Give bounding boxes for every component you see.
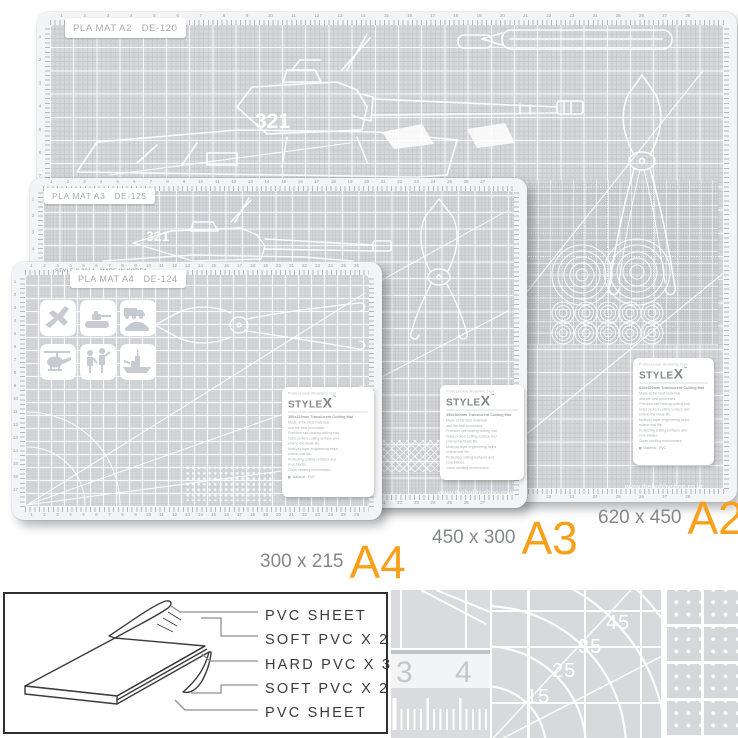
mat-a3-label-tab: PLA MAT A3 DE-125	[44, 188, 155, 204]
closeup-dotted-squares	[664, 590, 738, 738]
stylex-logo: STYLEX™	[639, 367, 708, 382]
mat-a4-label: PLA MAT A4 DE-124	[78, 274, 178, 284]
card-text: Made of the best materialsand the best p…	[446, 419, 518, 472]
mat-a3-label: PLA MAT A3 DE-125	[52, 191, 147, 201]
ruler-number: 3	[396, 656, 413, 690]
card-dims-line: 450x300mm Translucent Cutting Mat	[446, 413, 518, 418]
card-divider	[639, 383, 708, 384]
cutting-mat-a4: 1234567891011121314151617181920212223242…	[12, 262, 382, 520]
bullet-square-icon	[639, 447, 642, 450]
arc-number: 35	[578, 636, 602, 659]
size-label-a4: 300 x 215 A4	[260, 544, 406, 582]
layer-label: HARD PVC X 3	[265, 657, 392, 673]
card-text: Made of the best materialsand the best p…	[639, 392, 708, 445]
ruler-minor-ticks	[391, 709, 490, 730]
dimensions-text: 450 x 300	[432, 527, 515, 549]
layer-construction-panel: PVC SHEETSOFT PVC X 2HARD PVC X 3SOFT PV…	[3, 592, 388, 734]
size-letter: A3	[521, 520, 577, 558]
card-material: Material : PVC	[639, 447, 708, 451]
card-dims-line: 300x215mm Translucent Cutting Mat	[288, 415, 368, 420]
card-dims-line: 620x450mm Translucent Cutting Mat	[639, 386, 708, 391]
ruler-numbers: 1234567891011121314151617181920212223242…	[43, 179, 514, 187]
arc-number: 45	[606, 612, 630, 635]
dimensions-text: 620 x 450	[598, 507, 681, 529]
fine-grid-patch	[515, 180, 718, 345]
bullet-square-icon	[288, 476, 291, 479]
dot-texture-patch	[185, 465, 275, 501]
watermark: www.thehobbyshop.co.kr	[438, 490, 516, 497]
closeup-ruler-edge: 34	[391, 590, 490, 738]
dimensions-text: 300 x 215	[260, 551, 343, 573]
ruler-numbers: 1234567891011121314151617181920212223242…	[25, 512, 369, 520]
size-letter: A4	[349, 544, 405, 582]
stylex-logo: STYLEX™	[288, 396, 368, 411]
card-text: Made of the best materialsand the best p…	[288, 421, 368, 474]
ruler-number-band: 34	[391, 654, 490, 688]
layer-label: PVC SHEET	[265, 705, 392, 721]
card-material: Material : PVC	[288, 476, 368, 480]
arc-number: 15	[526, 686, 550, 709]
ruler-numbers: 1234567891011121314151617	[13, 275, 21, 507]
mat-a2-label-tab: PLA MAT A2 DE-120	[65, 18, 186, 38]
arc-number: 25	[552, 660, 576, 683]
product-image: 1234567891011121314151617181920212223242…	[0, 0, 738, 738]
stylex-card-a4: Professional Modeling Tool STYLEX™ 300x2…	[282, 387, 374, 497]
stylex-logo: STYLEX™	[446, 394, 518, 409]
layer-label: SOFT PVC X 2	[265, 632, 392, 648]
stylex-card-a3: Professional Modeling Tool STYLEX™ 450x3…	[440, 385, 524, 480]
card-divider	[288, 412, 368, 413]
closeup-arc-scale: 15253545	[492, 590, 661, 738]
card-divider	[446, 410, 518, 411]
watermark: www.thehobbyshop.co.kr	[625, 484, 703, 491]
arc-lines	[492, 590, 661, 738]
bottom-info-strip: PVC SHEETSOFT PVC X 2HARD PVC X 3SOFT PV…	[0, 588, 738, 738]
ruler-number: 4	[455, 656, 472, 690]
mat-a4-label-tab: PLA MAT A4 DE-124	[70, 270, 186, 288]
angled-lines	[391, 590, 490, 648]
size-label-a2: 620 x 450 A2	[598, 500, 738, 538]
ruler-ticks	[724, 25, 729, 489]
stylex-card-a2: Professional Modeling Tool STYLEX™ 620x4…	[633, 358, 714, 465]
layer-label: PVC SHEET	[265, 608, 392, 624]
size-label-a3: 450 x 300 A3	[432, 520, 578, 558]
layer-label: SOFT PVC X 2	[265, 681, 392, 697]
layer-labels: PVC SHEETSOFT PVC X 2HARD PVC X 3SOFT PV…	[265, 608, 392, 721]
size-letter: A2	[687, 500, 738, 538]
mat-a2-label: PLA MAT A2 DE-120	[73, 23, 178, 34]
